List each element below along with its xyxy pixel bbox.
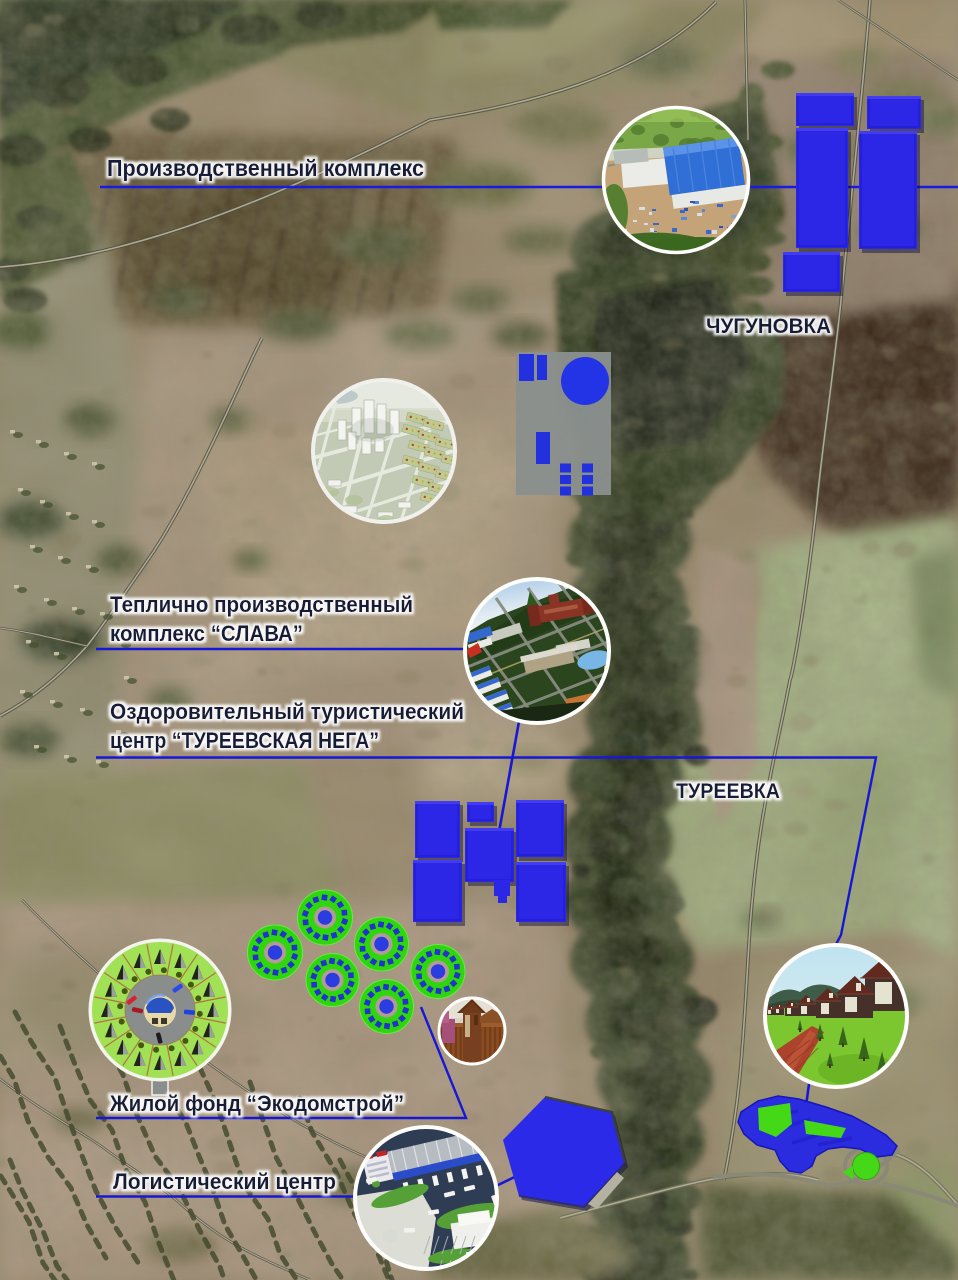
svg-text:Теплично производственный: Теплично производственный — [110, 592, 413, 617]
svg-text:ТУРЕЕВКА: ТУРЕЕВКА — [676, 780, 780, 803]
svg-text:комплекс “СЛАВА”: комплекс “СЛАВА” — [110, 621, 303, 646]
svg-text:Логистический центр: Логистический центр — [113, 1169, 336, 1194]
svg-text:Оздоровительный туристический: Оздоровительный туристический — [110, 699, 464, 724]
svg-text:центр “ТУРЕЕВСКАЯ НЕГА”: центр “ТУРЕЕВСКАЯ НЕГА” — [110, 728, 379, 753]
svg-text:Производственный комплекс: Производственный комплекс — [107, 155, 424, 181]
svg-text:Жилой фонд “Экодомстрой”: Жилой фонд “Экодомстрой” — [109, 1091, 404, 1116]
svg-text:ЧУГУНОВКА: ЧУГУНОВКА — [706, 315, 831, 338]
